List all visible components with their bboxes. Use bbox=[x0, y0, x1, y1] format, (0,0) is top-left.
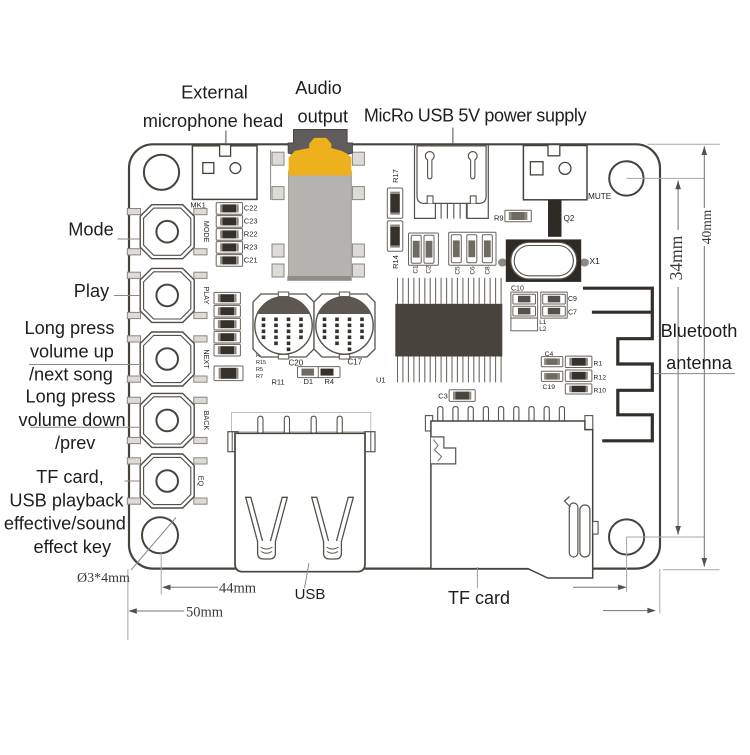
svg-text:/prev: /prev bbox=[55, 433, 96, 453]
svg-text:C21: C21 bbox=[244, 256, 258, 265]
svg-text:USB playback: USB playback bbox=[9, 490, 124, 510]
svg-text:C19: C19 bbox=[543, 384, 556, 391]
svg-text:C22: C22 bbox=[244, 204, 258, 213]
svg-text:C1: C1 bbox=[413, 265, 420, 274]
svg-text:R17: R17 bbox=[391, 169, 400, 183]
svg-text:C5: C5 bbox=[455, 266, 462, 275]
svg-text:Ø3*4mm: Ø3*4mm bbox=[77, 571, 130, 586]
svg-text:R7: R7 bbox=[256, 374, 263, 380]
svg-text:MODE: MODE bbox=[202, 221, 211, 243]
svg-text:C17: C17 bbox=[348, 358, 363, 367]
svg-text:44mm: 44mm bbox=[219, 581, 257, 597]
svg-text:U1: U1 bbox=[376, 376, 386, 385]
svg-text:C10: C10 bbox=[511, 286, 524, 293]
svg-text:L2: L2 bbox=[539, 326, 547, 333]
svg-text:R4: R4 bbox=[325, 377, 335, 386]
svg-text:C8: C8 bbox=[485, 266, 492, 275]
svg-text:Bluetooth: Bluetooth bbox=[661, 321, 738, 341]
svg-text:Q2: Q2 bbox=[564, 214, 575, 223]
svg-text:antenna: antenna bbox=[666, 353, 733, 373]
svg-text:MicRo USB 5V power supply: MicRo USB 5V power supply bbox=[364, 106, 587, 126]
svg-text:R14: R14 bbox=[391, 255, 400, 269]
svg-text:BACK: BACK bbox=[202, 411, 211, 431]
svg-text:50mm: 50mm bbox=[186, 605, 224, 621]
svg-text:C6: C6 bbox=[470, 266, 477, 275]
svg-text:Play: Play bbox=[74, 281, 110, 301]
svg-text:Long press: Long press bbox=[25, 318, 115, 338]
svg-text:C7: C7 bbox=[568, 310, 577, 317]
svg-text:R10: R10 bbox=[594, 388, 607, 395]
svg-text:effective/sound: effective/sound bbox=[4, 514, 126, 534]
svg-text:PLAY: PLAY bbox=[202, 286, 211, 304]
svg-text:TF card: TF card bbox=[448, 588, 510, 608]
svg-text:R1: R1 bbox=[594, 361, 603, 368]
svg-text:Long press: Long press bbox=[26, 387, 116, 407]
svg-text:40mm: 40mm bbox=[699, 209, 714, 244]
svg-text:C3: C3 bbox=[438, 391, 448, 400]
svg-text:C9: C9 bbox=[568, 296, 577, 303]
svg-text:X1: X1 bbox=[590, 256, 601, 266]
svg-text:Audio: Audio bbox=[295, 78, 342, 98]
svg-text:TF card,: TF card, bbox=[36, 467, 104, 487]
svg-text:R15: R15 bbox=[256, 360, 266, 366]
svg-text:NEXT: NEXT bbox=[202, 349, 211, 369]
svg-text:output: output bbox=[298, 107, 349, 127]
svg-text:volume up: volume up bbox=[30, 341, 114, 361]
svg-text:USB: USB bbox=[295, 586, 326, 603]
svg-text:R22: R22 bbox=[244, 230, 258, 239]
svg-text:C2: C2 bbox=[426, 265, 433, 274]
svg-text:34mm: 34mm bbox=[666, 235, 686, 280]
svg-text:microphone head: microphone head bbox=[143, 111, 284, 131]
svg-text:MUTE: MUTE bbox=[588, 192, 612, 201]
svg-text:External: External bbox=[181, 83, 248, 103]
svg-text:C23: C23 bbox=[244, 217, 258, 226]
svg-text:Mode: Mode bbox=[68, 220, 114, 240]
svg-text:R11: R11 bbox=[272, 378, 285, 387]
svg-text:R23: R23 bbox=[244, 243, 258, 252]
svg-text:R9: R9 bbox=[494, 214, 504, 223]
svg-text:R5: R5 bbox=[256, 367, 263, 373]
svg-text:EQ: EQ bbox=[197, 476, 206, 487]
svg-text:effect key: effect key bbox=[34, 537, 112, 557]
svg-text:D1: D1 bbox=[304, 377, 314, 386]
svg-text:MK1: MK1 bbox=[190, 201, 205, 210]
svg-text:/next song: /next song bbox=[29, 365, 113, 385]
svg-text:R12: R12 bbox=[594, 375, 607, 382]
